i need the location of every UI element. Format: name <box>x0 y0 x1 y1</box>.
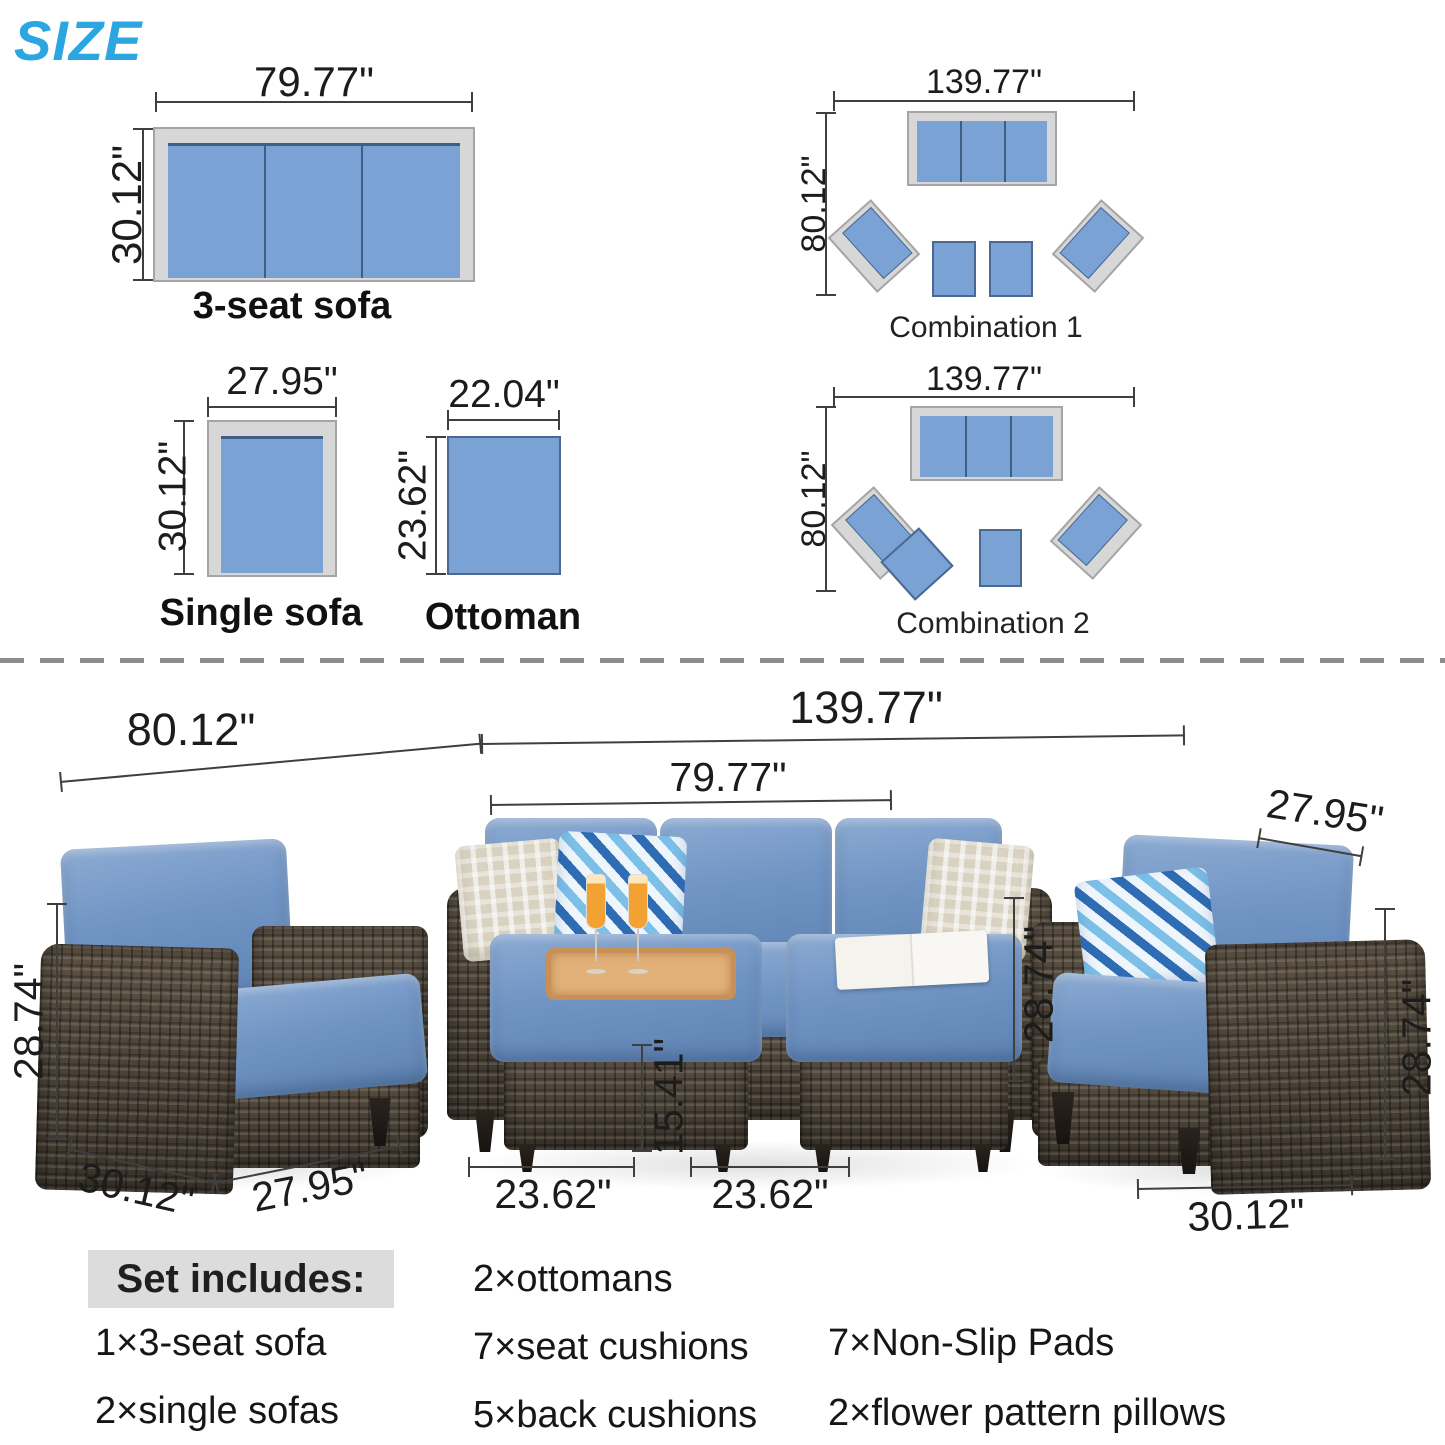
dim-label-total-width: 139.77" <box>766 682 966 734</box>
combo1-right-chair <box>1052 199 1145 293</box>
dim-label-sofa3-width: 79.77" <box>214 58 414 106</box>
dim-line-single-width <box>207 406 337 408</box>
dim-line-right-chair-height <box>1384 908 1386 1160</box>
combo1-left-chair <box>828 199 921 293</box>
dim-label-single-height: 30.12" <box>152 397 191 597</box>
dim-label-right-chair-height: 28.74" <box>1394 938 1435 1138</box>
dim-tick <box>833 91 835 111</box>
dim-label-combo1-depth: 80.12" <box>795 104 829 304</box>
sofa3-top-view <box>153 127 475 282</box>
dim-tick <box>490 795 492 815</box>
combo2-ottoman <box>979 529 1022 587</box>
glass-bowl <box>628 874 648 929</box>
dim-label-single-width: 27.95" <box>182 360 382 404</box>
combo1-ottoman-left <box>932 241 976 297</box>
dim-tick <box>481 734 483 754</box>
dim-tick <box>833 387 835 407</box>
single-sofa-top-view <box>207 420 337 577</box>
combo2-sofa-top-view <box>910 406 1063 481</box>
list-item-single-sofas: 2×single sofas <box>95 1390 339 1433</box>
dim-line-ottoman-height <box>641 1044 643 1152</box>
dim-tick <box>1133 387 1135 407</box>
ottoman-label: Ottoman <box>353 596 653 639</box>
combo1-sofa-cushions <box>917 121 1047 182</box>
cushion-seam <box>965 416 967 477</box>
page-title: SIZE <box>14 8 142 73</box>
cushion-seam <box>960 121 962 182</box>
cushion-seam <box>264 145 266 278</box>
juice-glass <box>584 874 608 974</box>
dim-label-sofa-height: 28.74" <box>1016 885 1057 1085</box>
dim-label-combo2-depth: 80.12" <box>795 399 829 599</box>
combo1-ottoman-right <box>989 241 1033 297</box>
dashed-divider <box>0 658 1445 663</box>
glass-bowl <box>586 874 606 929</box>
list-item-flower-pillows: 2×flower pattern pillows <box>828 1392 1226 1435</box>
dim-label-ottoman-height: 23.62" <box>392 406 431 606</box>
dim-tick <box>1183 725 1185 745</box>
dim-label-ottoman-right-width: 23.62" <box>670 1171 870 1218</box>
juice-glass <box>626 874 650 974</box>
sofa3-label: 3-seat sofa <box>142 285 442 328</box>
dim-label-left-group-width: 80.12" <box>91 704 291 756</box>
cushion-seam <box>1004 121 1006 182</box>
dim-tick <box>155 92 157 112</box>
combo2-sofa-cushions <box>920 416 1053 477</box>
combo1-label: Combination 1 <box>836 311 1136 345</box>
dim-label-ottoman-width: 22.04" <box>404 373 604 417</box>
dim-line-left-chair-height <box>56 903 58 1140</box>
dim-label-left-chair-height: 28.74" <box>6 922 47 1122</box>
chair-seat <box>1057 494 1127 566</box>
dim-tick <box>890 790 892 810</box>
list-item-ottomans: 2×ottomans <box>473 1258 673 1301</box>
set-includes-heading: Set includes: <box>88 1250 394 1308</box>
open-magazine <box>835 930 990 990</box>
dim-label-sofa3-height: 30.12" <box>103 105 145 305</box>
dim-label-ottoman-left-width: 23.62" <box>453 1171 653 1218</box>
dim-line-ottoman-height <box>435 436 437 575</box>
dim-tick <box>471 92 473 112</box>
dim-line-ottoman-width <box>447 419 560 421</box>
dim-label-right-chair-width: 27.95" <box>1223 774 1428 852</box>
dim-label-combo1-width: 139.77" <box>884 63 1084 102</box>
size-chart-page: SIZE 79.77" 30.12" 3-seat sofa 27.95" 30… <box>0 0 1445 1445</box>
dim-tick <box>47 903 67 905</box>
combo1-sofa-top-view <box>907 111 1057 186</box>
combo2-label: Combination 2 <box>843 607 1143 641</box>
dim-label-right-chair-depth: 30.12" <box>1145 1189 1347 1243</box>
sofa3-cushions <box>168 143 460 278</box>
list-item-3-seat-sofa: 1×3-seat sofa <box>95 1322 326 1365</box>
cushion-seam <box>361 145 363 278</box>
chair-seat <box>1059 207 1129 279</box>
dim-line-ottoman-left-width <box>468 1166 635 1168</box>
dim-line-total-width <box>481 734 1185 745</box>
dim-tick <box>1375 908 1395 910</box>
glass-stem <box>595 929 597 961</box>
dim-tick <box>1137 1179 1139 1199</box>
chair-seat <box>842 207 912 279</box>
single-sofa-cushion <box>221 436 323 573</box>
ottoman-top-view <box>447 436 561 575</box>
list-item-back-cushions: 5×back cushions <box>473 1394 757 1437</box>
dim-label-combo2-width: 139.77" <box>884 360 1084 399</box>
dim-tick <box>1375 1158 1395 1160</box>
combo2-right-chair <box>1050 486 1143 580</box>
list-item-non-slip-pads: 7×Non-Slip Pads <box>828 1322 1114 1365</box>
cushion-seam <box>1010 416 1012 477</box>
dim-tick <box>1351 1175 1353 1195</box>
dim-label-sofa-width: 79.77" <box>628 754 828 801</box>
list-item-seat-cushions: 7×seat cushions <box>473 1326 749 1369</box>
dim-tick <box>1359 846 1364 866</box>
glass-foot <box>586 969 606 974</box>
dim-tick <box>47 1138 67 1140</box>
dim-tick <box>1133 91 1135 111</box>
dim-tick <box>59 772 63 792</box>
dim-line-ottoman-right-width <box>690 1166 850 1168</box>
dim-label-ottoman-height: 15.41" <box>646 997 687 1197</box>
glass-stem <box>637 929 639 961</box>
glass-foot <box>628 969 648 974</box>
